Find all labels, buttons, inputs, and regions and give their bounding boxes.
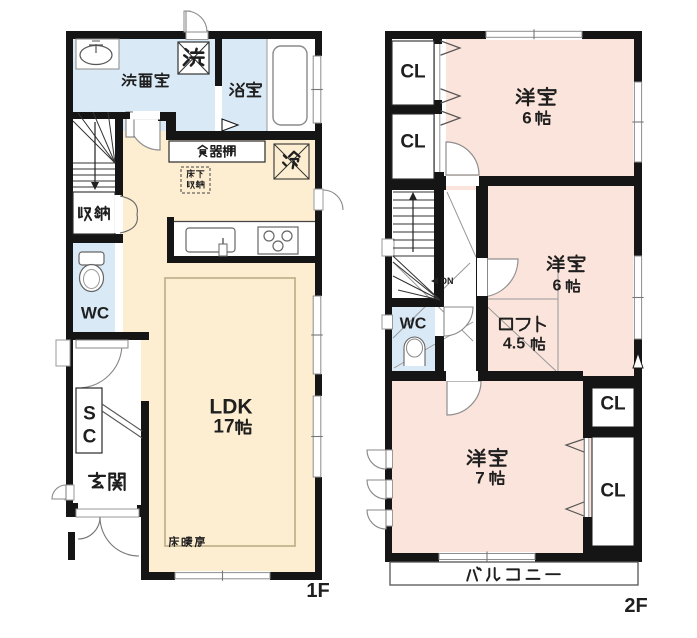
svg-text:1F: 1F bbox=[306, 580, 329, 602]
svg-text:17: 17 bbox=[213, 417, 234, 438]
svg-text:4.5: 4.5 bbox=[503, 336, 525, 353]
svg-text:2F: 2F bbox=[624, 595, 647, 617]
svg-text:LDK: LDK bbox=[209, 396, 252, 419]
svg-text:6: 6 bbox=[522, 109, 531, 128]
svg-text:CL: CL bbox=[400, 62, 426, 83]
svg-text:CL: CL bbox=[600, 394, 626, 415]
svg-text:CL: CL bbox=[400, 132, 426, 153]
svg-text:6: 6 bbox=[553, 278, 562, 295]
svg-text:CL: CL bbox=[600, 481, 626, 502]
svg-text:C: C bbox=[83, 427, 97, 448]
svg-text:WC: WC bbox=[81, 304, 109, 323]
svg-text:S: S bbox=[83, 404, 96, 425]
svg-text:WC: WC bbox=[400, 316, 427, 333]
svg-text:DN: DN bbox=[441, 276, 454, 286]
svg-text:7: 7 bbox=[475, 469, 484, 488]
